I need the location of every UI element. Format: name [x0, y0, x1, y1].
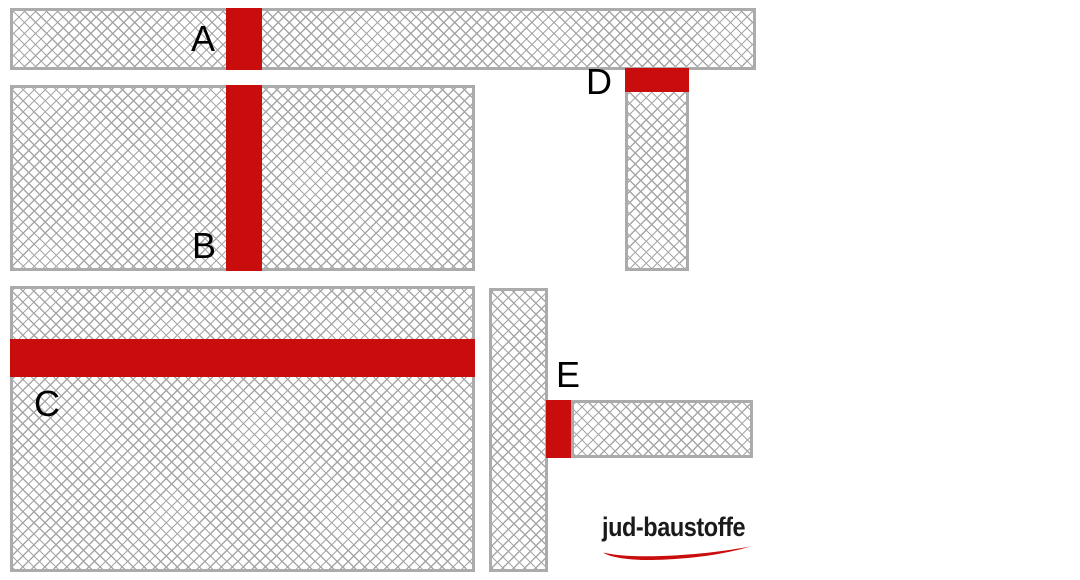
- seal-band-c: [10, 339, 475, 377]
- label-e: E: [556, 357, 580, 393]
- wall-e-vertical: [489, 288, 548, 572]
- seal-band-b: [226, 85, 262, 271]
- label-b: B: [192, 228, 216, 264]
- brand-logo: jud-baustoffe: [602, 514, 766, 561]
- seal-band-a: [226, 8, 262, 70]
- logo-swoosh-icon: [602, 545, 752, 561]
- brand-logo-text: jud-baustoffe: [602, 514, 745, 541]
- label-a: A: [191, 21, 215, 57]
- seal-band-d: [625, 68, 689, 92]
- wall-c: [10, 286, 475, 572]
- seal-band-e: [546, 400, 571, 458]
- label-d: D: [586, 64, 612, 100]
- diagram-canvas: A B D C E jud-baustoffe: [0, 0, 1080, 580]
- wall-a-horizontal: [10, 8, 756, 70]
- wall-e-horizontal: [571, 400, 753, 458]
- label-c: C: [34, 386, 60, 422]
- wall-d-vertical: [625, 68, 689, 271]
